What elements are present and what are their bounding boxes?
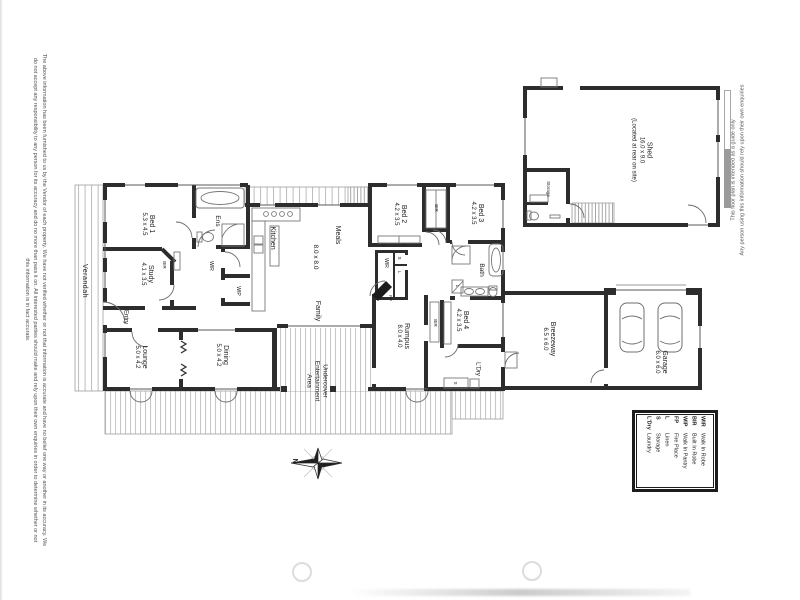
l-bath-label: L [454, 285, 459, 288]
bir23-label: BIR [433, 204, 438, 212]
guide-only-note: This floor plan is intended as a guide o… [730, 20, 747, 320]
l2-label: L [396, 271, 401, 274]
garage-label: Garage6.0 x 6.0 [652, 350, 668, 373]
bir4-label: BIR [432, 319, 437, 327]
bed3-label: Bed 34.2 x 3.5 [468, 201, 484, 224]
compass-north-label: N [290, 458, 298, 463]
door-arcs [103, 204, 706, 402]
scan-artifact-bar [724, 149, 731, 208]
legend-entries: WIRWalk In Robe BIRBuilt In Robe WIPWalk… [644, 416, 707, 486]
scan-smudge [350, 589, 690, 596]
bed2-label: Bed 24.2 x 3.5 [391, 202, 407, 225]
wir1-label: WIR [208, 261, 214, 271]
lounge-label: Lounge5.0 x 4.2 [132, 345, 148, 368]
opening-squiggles [181, 341, 186, 376]
storage-shed-label: Storage [545, 181, 550, 197]
wip-label: WIP [235, 286, 241, 295]
s2-label: S [396, 256, 401, 259]
study-label: Study4.1 x 3.5 [138, 262, 154, 285]
bir-study-label: BIR [161, 261, 166, 269]
entry-label: Entry [121, 310, 128, 324]
legend-row: LLinen [662, 416, 671, 486]
hole-punch [522, 561, 542, 581]
legend-row: WIRWalk In Robe [698, 416, 707, 486]
legend-row: SStorage [653, 416, 662, 486]
rumpus-label: Rumpus8.0 x 4.0 [394, 323, 410, 349]
legend-box: WIRWalk In Robe BIRBuilt In Robe WIPWalk… [632, 410, 718, 492]
kitchen-label: Kitchen [268, 226, 276, 249]
wir2-label: WIR [383, 258, 389, 268]
robe-e-label: E [400, 243, 405, 246]
verandah-decking [75, 185, 614, 434]
meals-dims-label: 8.0 x 8.0 [311, 245, 319, 270]
compass-icon [291, 448, 342, 479]
breezeway-label: Breezeway6.5 x 6.0 [540, 322, 556, 357]
bath-label: Bath [477, 263, 485, 276]
ldry-label: L'Dry [473, 362, 480, 376]
ens-label: Ens [213, 215, 221, 226]
bed4-label: Bed 44.2 x 3.5 [453, 308, 469, 331]
family-label: Family [313, 301, 321, 322]
car-icons [620, 303, 682, 352]
vendor-disclaimer-text: The above information has been furnished… [22, 30, 48, 570]
s-ldry-label: S [452, 381, 457, 384]
meals-label: Meals [333, 226, 341, 245]
floor-plan-page: Verandah Bed 15.3 x 4.5 Ens WIR BIR Stud… [0, 0, 800, 600]
verandah-label: Verandah [80, 264, 88, 298]
bed1-label: Bed 15.3 x 4.5 [139, 212, 155, 235]
undercover-area-label: Undercover Entertainment Area [305, 361, 328, 401]
scan-artifact-outline [724, 90, 731, 150]
legend-row: BIRBuilt In Robe [689, 416, 698, 486]
legend-row: FPFire Place [671, 416, 680, 486]
study-robe-corner [162, 249, 175, 262]
dining-label: Dining5.0 x 4.2 [213, 343, 229, 366]
fp-label: FP [387, 295, 392, 301]
legend-row: L'DryLaundry [644, 416, 653, 486]
hole-punch [292, 562, 312, 582]
floor-plan-linework [0, 0, 800, 600]
shed-label: Shed 16.0 x 9.0 (Located at rear on site… [630, 118, 653, 182]
legend-row: WIPWalk In Pantry [680, 416, 689, 486]
robe-r-label: R [380, 243, 385, 246]
